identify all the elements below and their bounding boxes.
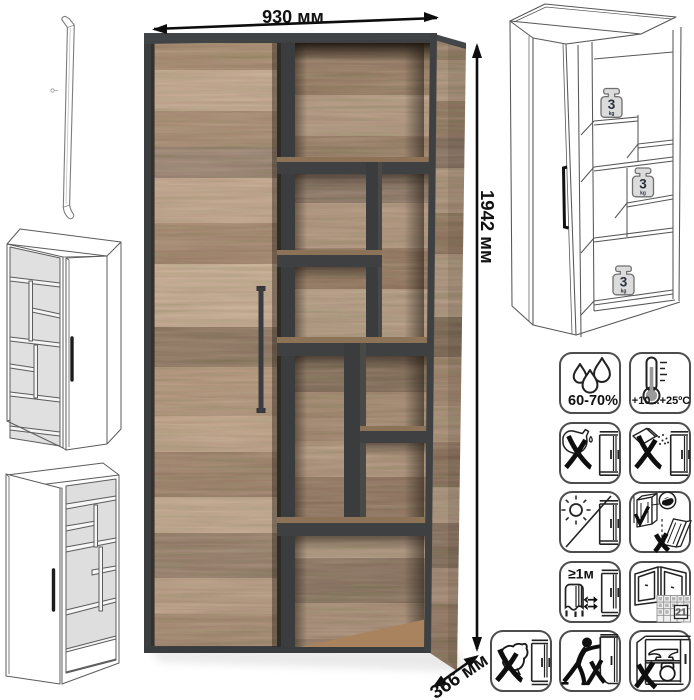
svg-text:60-70%: 60-70% bbox=[568, 393, 618, 409]
svg-text:1942 мм: 1942 мм bbox=[477, 190, 498, 264]
svg-text:21: 21 bbox=[675, 608, 687, 619]
svg-text:+10...+25ºС: +10...+25ºС bbox=[632, 395, 691, 407]
svg-text:930 мм: 930 мм bbox=[262, 7, 324, 27]
svg-text:≥1м: ≥1м bbox=[568, 566, 594, 582]
